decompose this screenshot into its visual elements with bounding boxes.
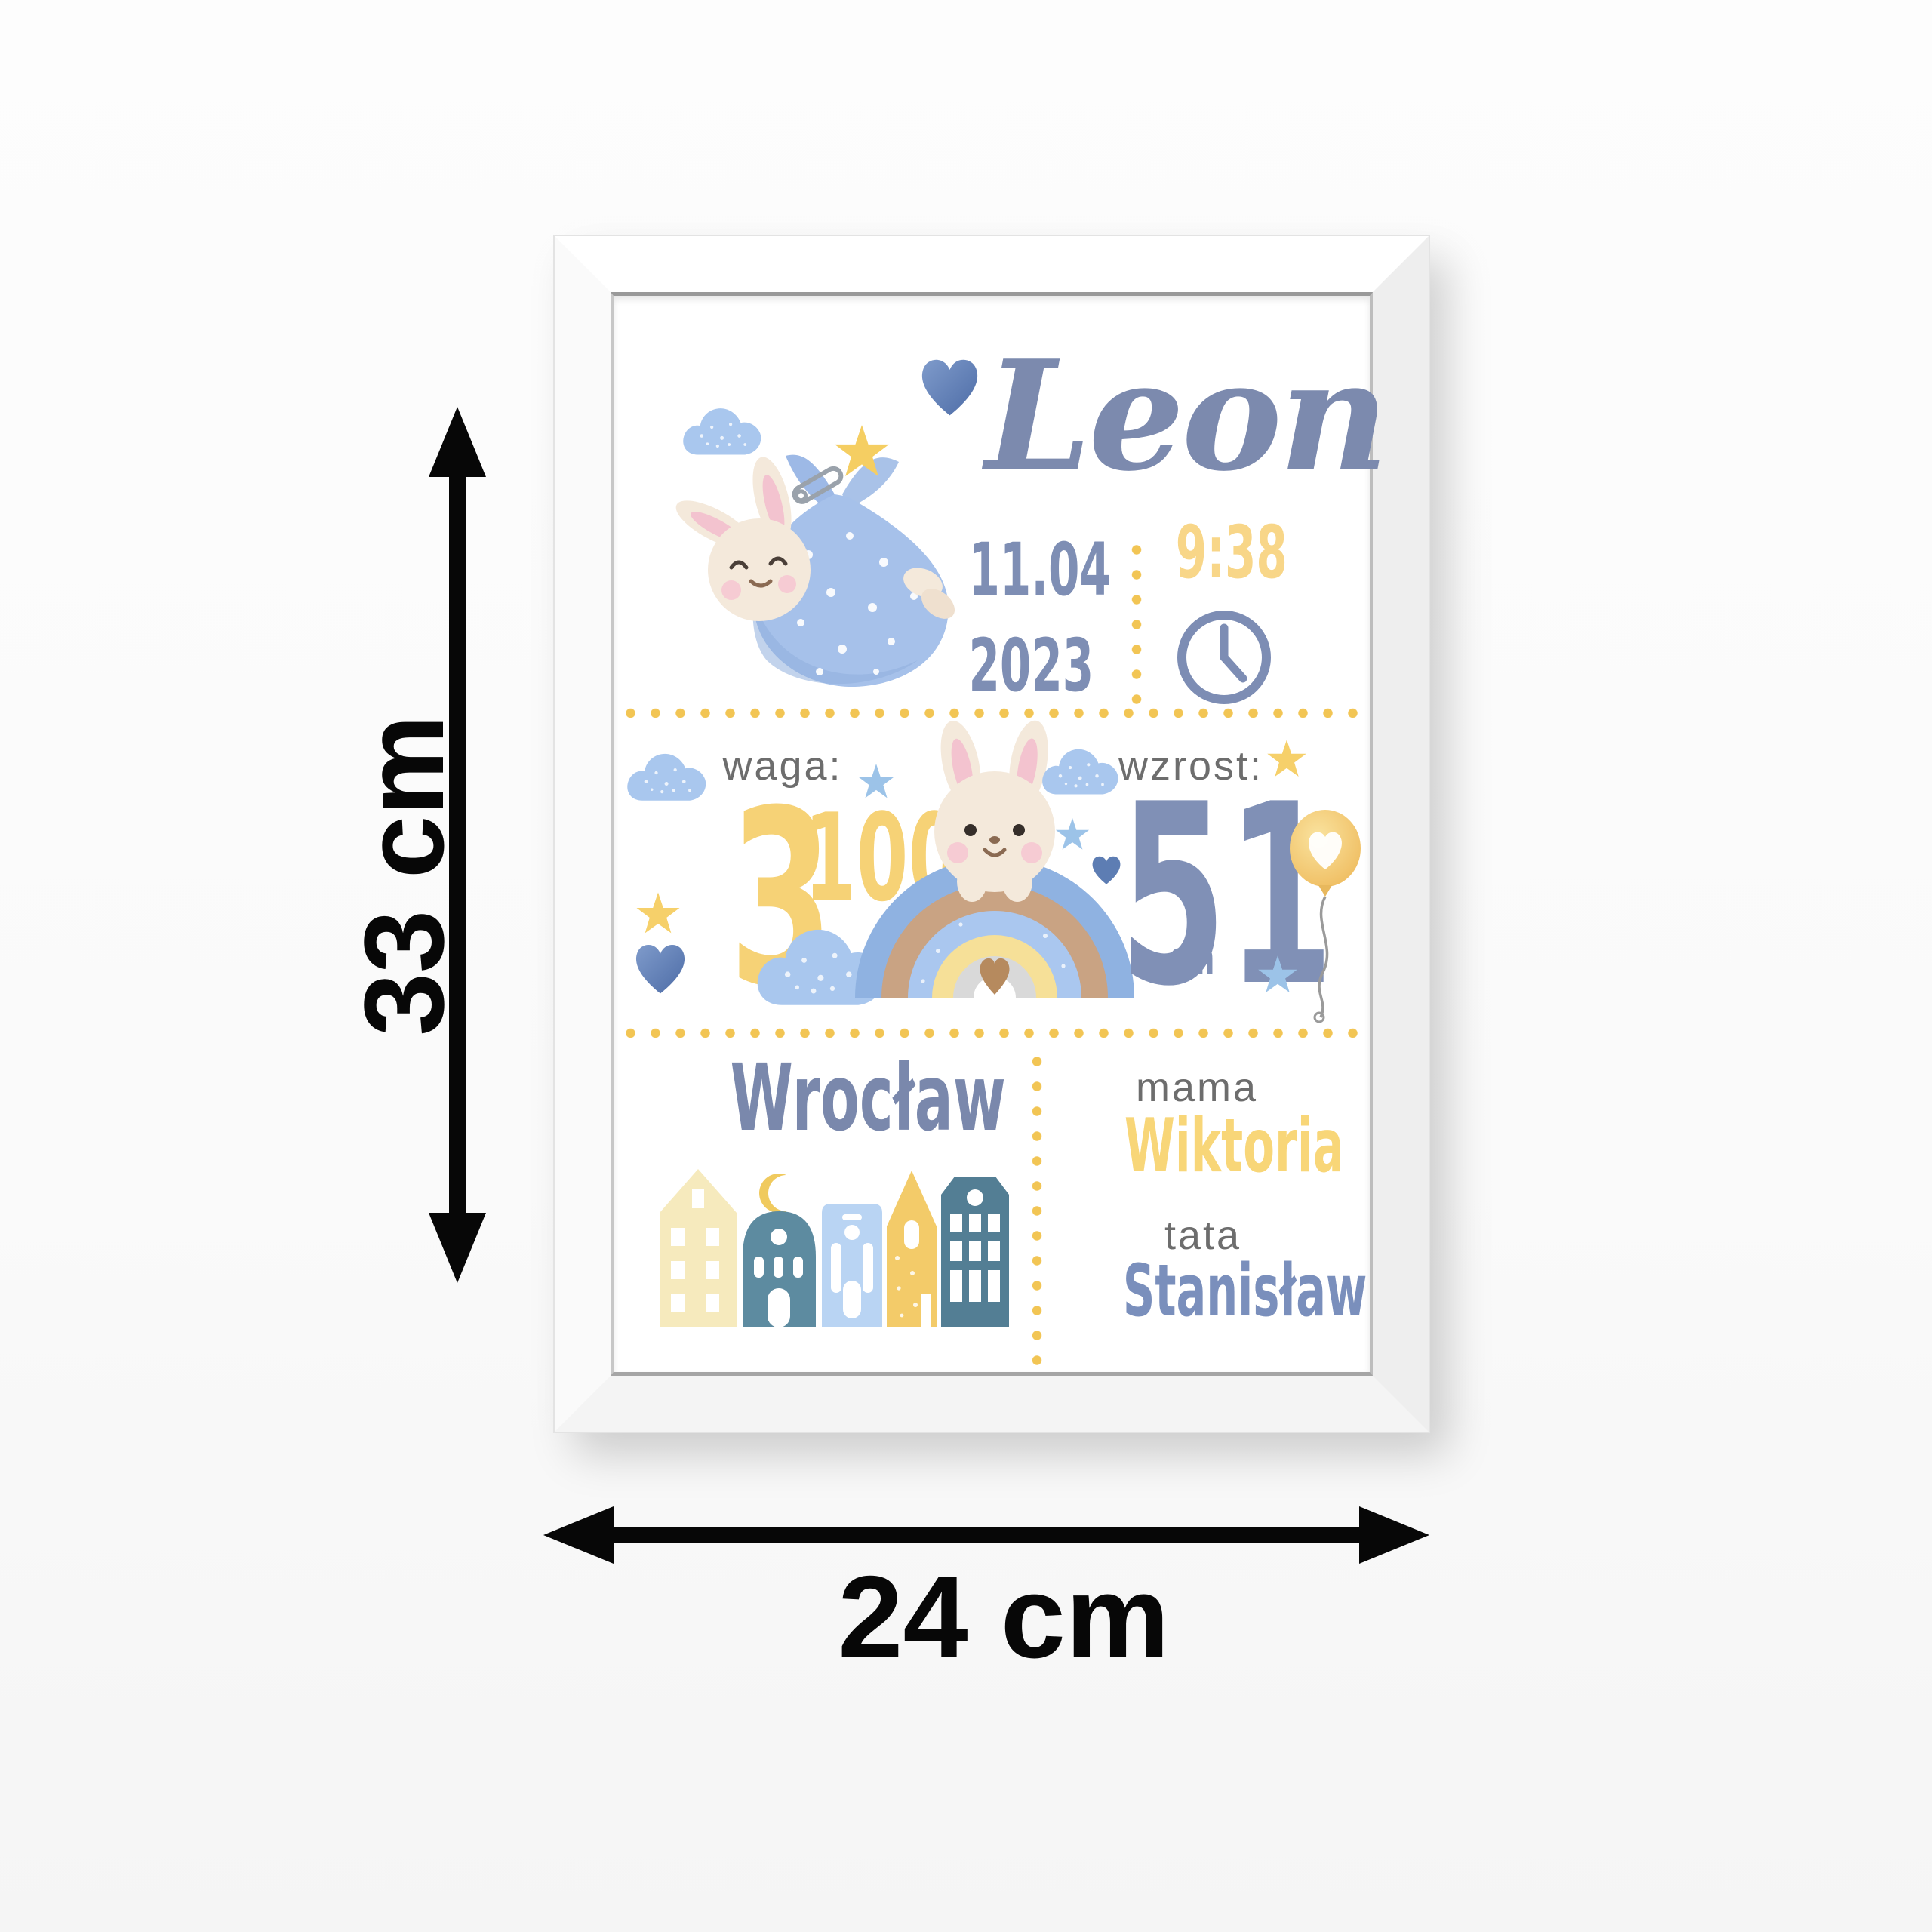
mom-name: Wiktoria: [1124, 1109, 1269, 1183]
picture-frame: Leon 11.04 2023 9:38 waga:: [555, 236, 1429, 1432]
city-name: Wrocław: [731, 1052, 894, 1144]
height-unit: cm: [1161, 936, 1223, 981]
height-dimension-label: 33 cm: [347, 641, 460, 1109]
poster-sheet: Leon 11.04 2023 9:38 waga:: [611, 292, 1373, 1376]
star-icon: [1257, 954, 1299, 996]
birth-date-line2: 2023: [969, 618, 1086, 714]
birth-time: 9:38: [1176, 516, 1278, 589]
houses-icon: [656, 1168, 1011, 1329]
heart-icon: [914, 353, 986, 418]
star-icon: [1054, 817, 1091, 853]
divider-city-parents: [1032, 1049, 1042, 1369]
heart-icon: [630, 939, 691, 996]
birth-date-line1: 11.04: [969, 522, 1086, 618]
star-icon: [635, 891, 681, 937]
clock-icon: [1172, 605, 1276, 709]
divider-date-time: [1131, 537, 1142, 708]
dad-name: Stanisław: [1123, 1256, 1268, 1327]
birth-date: 11.04 2023: [969, 522, 1086, 713]
mom-label: mama: [1118, 1067, 1276, 1108]
bunny-in-bundle-icon: [657, 423, 978, 717]
product-canvas: Leon 11.04 2023 9:38 waga:: [0, 0, 1932, 1932]
divider-middle-bottom: [618, 1028, 1367, 1038]
width-dimension-label: 24 cm: [777, 1558, 1230, 1675]
cloud-icon: [624, 743, 712, 804]
baby-name: Leon: [982, 341, 1389, 492]
heart-icon: [1089, 853, 1124, 886]
